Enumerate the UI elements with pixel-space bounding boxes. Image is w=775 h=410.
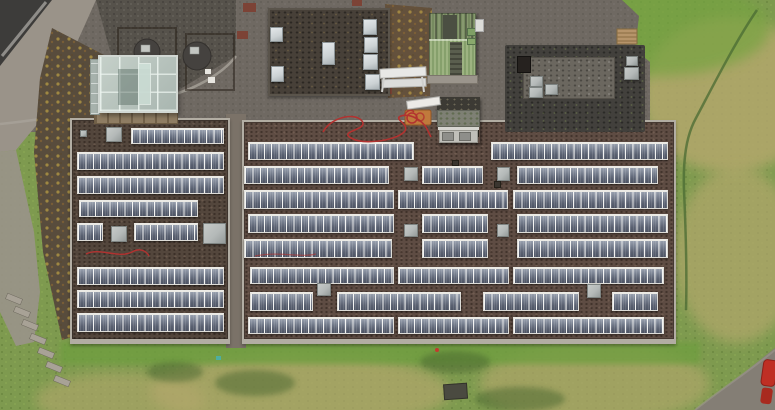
green-shed-side-box — [467, 38, 476, 45]
mossy-concrete-unit — [437, 97, 480, 143]
mossy-unit-vent — [459, 132, 471, 141]
green-shed — [429, 13, 476, 78]
green-shed-dark-band — [450, 42, 462, 75]
mossy-unit-weathered-mid — [437, 110, 480, 127]
objects-layer — [0, 0, 775, 410]
white-panel-beside-shed — [475, 19, 484, 32]
green-shed-dark-band — [443, 15, 457, 39]
greenhouse-bright-pane — [138, 63, 151, 105]
aerial-drone-photo — [0, 0, 775, 410]
mossy-unit-vent — [442, 132, 454, 141]
green-shed-apron — [427, 75, 478, 84]
glass-greenhouse — [90, 55, 180, 125]
mossy-unit-dark-top — [437, 97, 480, 110]
